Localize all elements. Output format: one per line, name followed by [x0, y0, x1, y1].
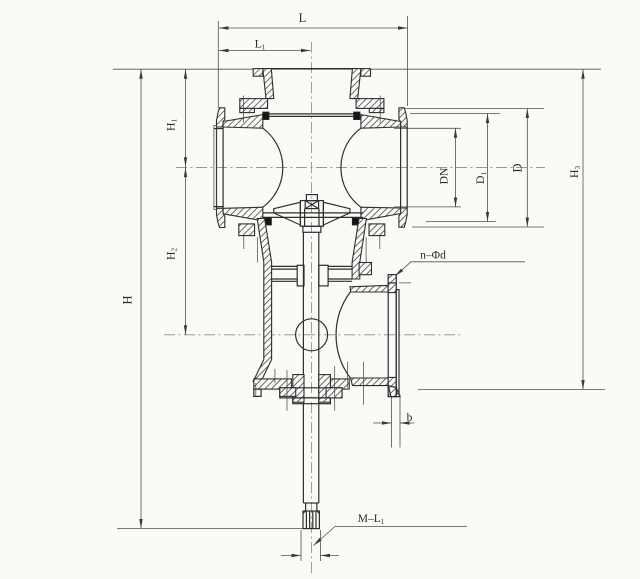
svg-text:D: D — [511, 163, 525, 172]
svg-text:L: L — [299, 11, 307, 25]
svg-text:DN: DN — [439, 167, 451, 184]
svg-text:M–L1: M–L1 — [358, 513, 385, 526]
svg-text:n–Φd: n–Φd — [420, 250, 446, 262]
svg-text:b: b — [407, 412, 413, 424]
svg-text:H: H — [121, 295, 135, 304]
